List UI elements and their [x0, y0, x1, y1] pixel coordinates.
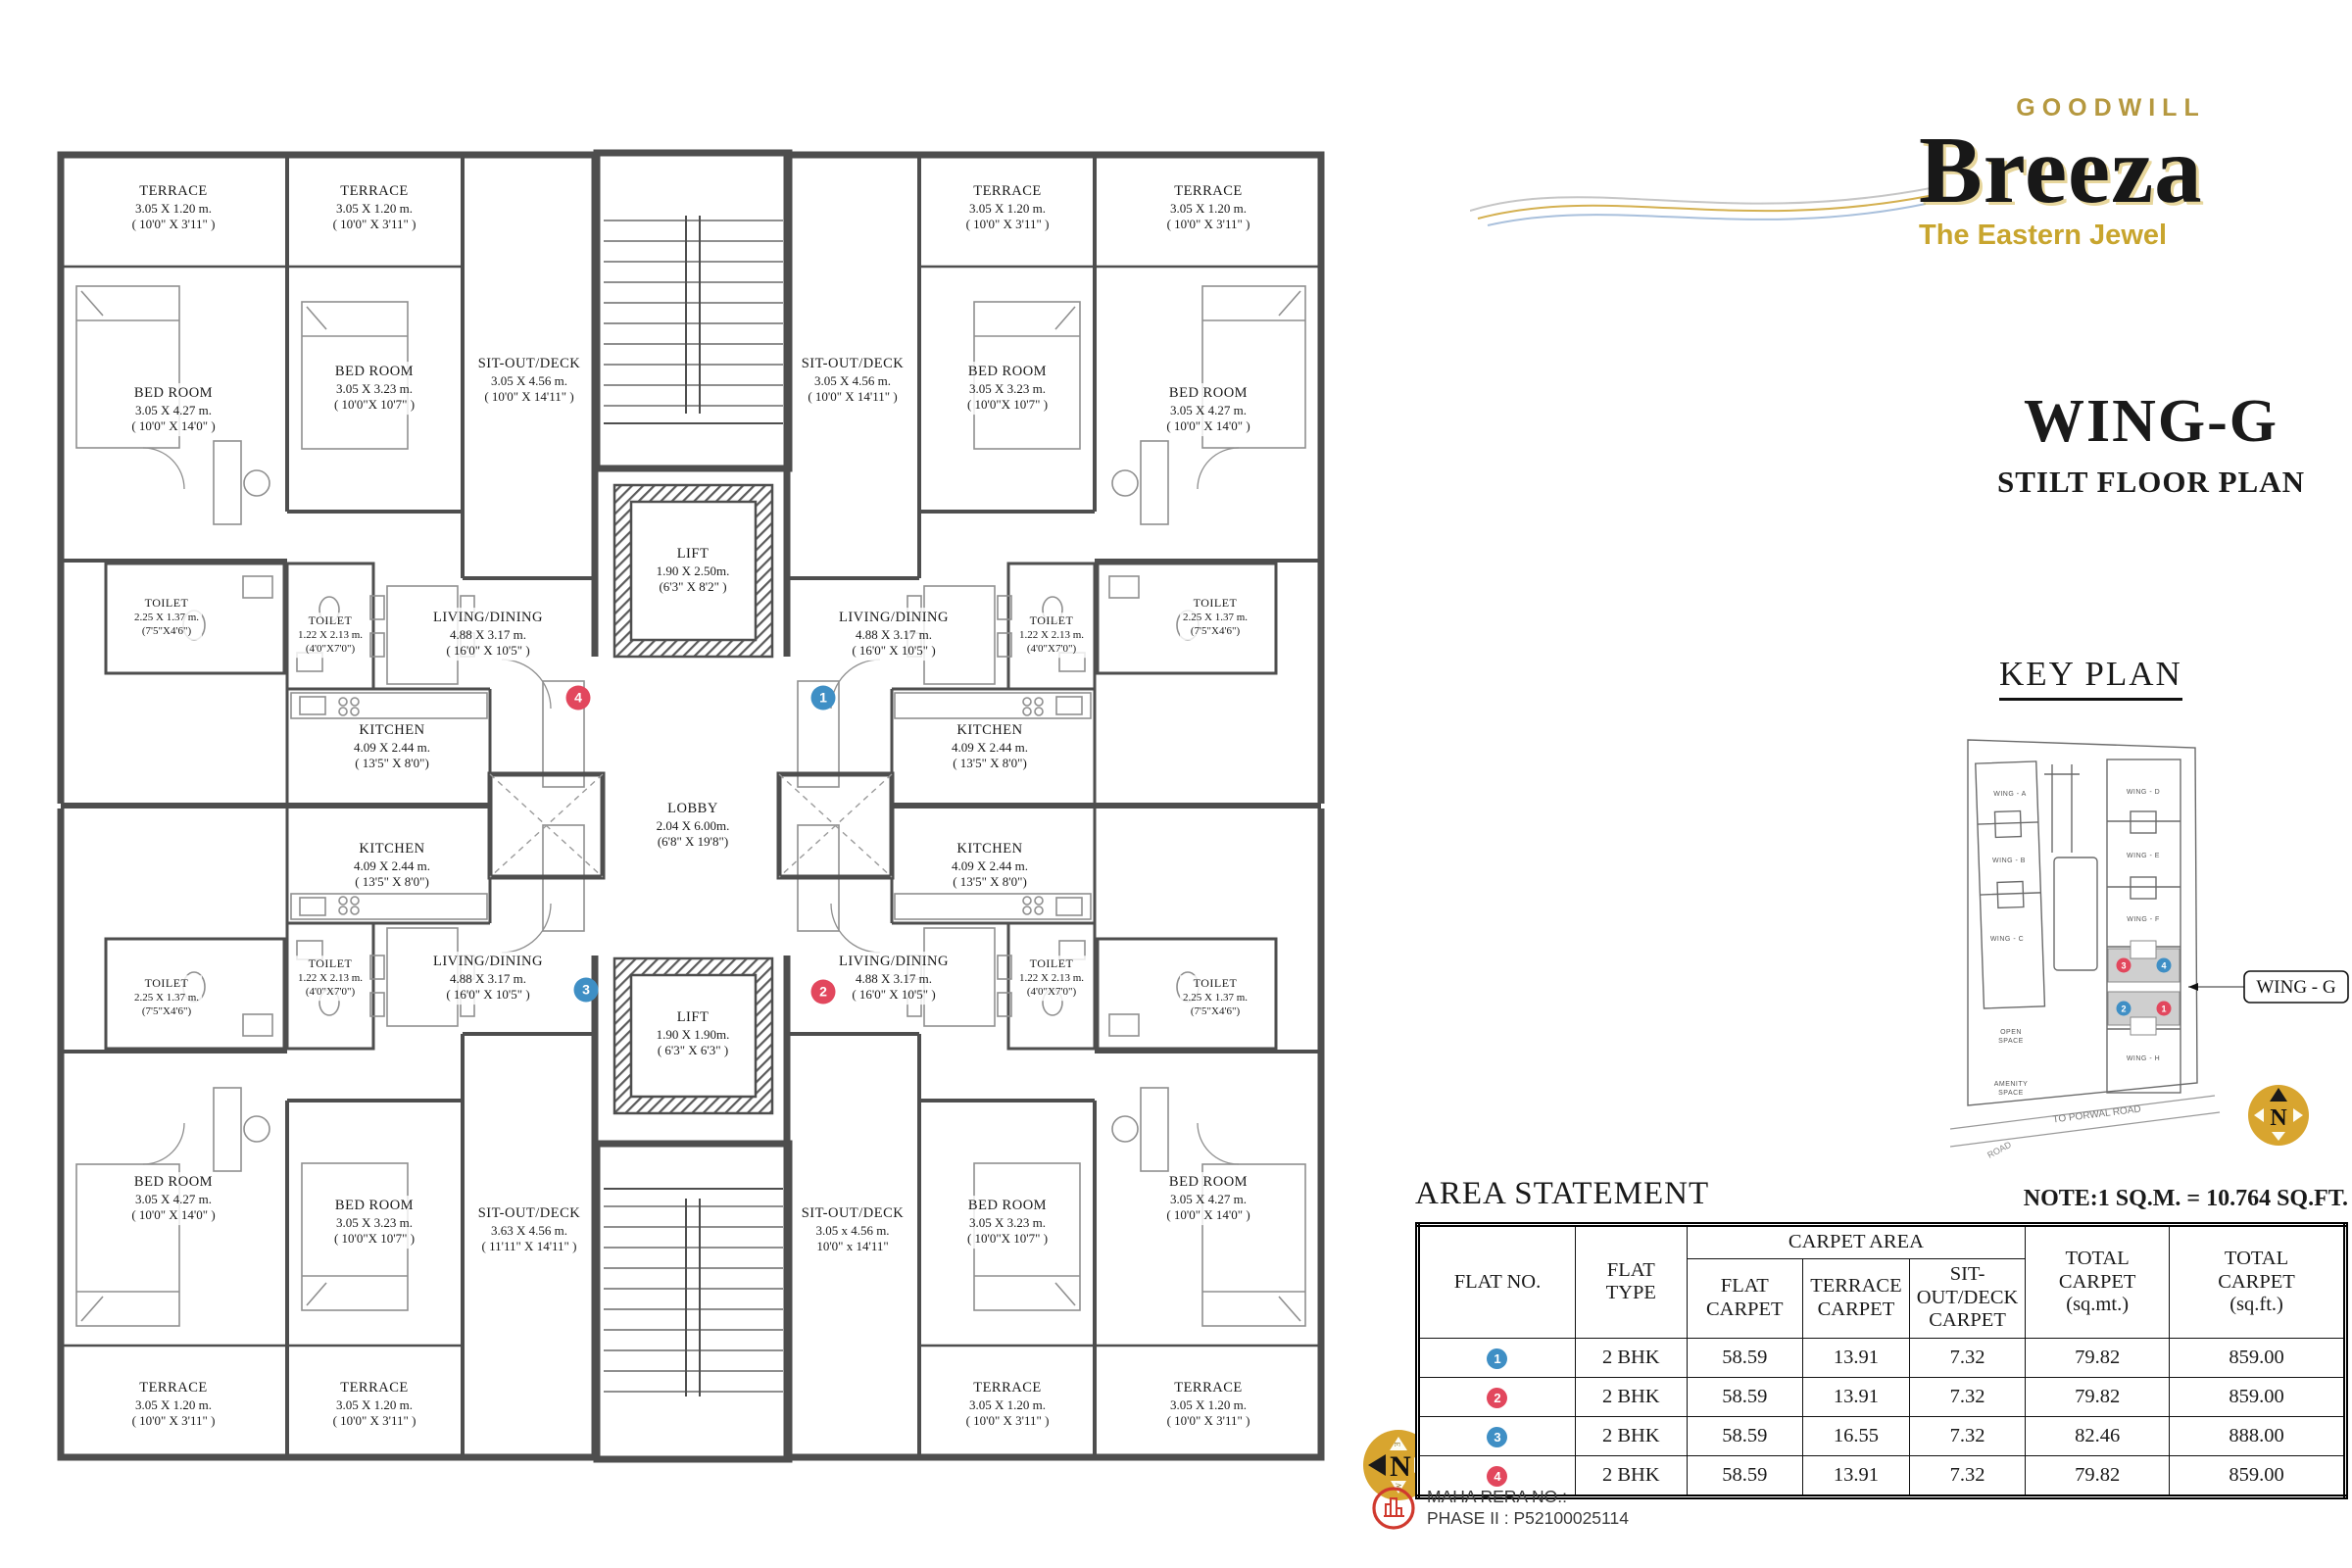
keyplan-dot-1: 1: [2161, 1004, 2166, 1014]
rera-block: MAHA RERA NO.: PHASE II : P52100025114: [1370, 1485, 1629, 1532]
room-label-sitout: SIT-OUT/DECK3.05 x 4.56 m.10'0" x 14'11": [799, 1203, 907, 1256]
keyplan-wing-e: WING - E: [2127, 853, 2160, 859]
room-label-lift-top: LIFT1.90 X 2.50m.(6'3" X 8'2" ): [654, 544, 733, 597]
room-label-lobby: LOBBY2.04 X 6.00m.(6'8" X 19'8"): [654, 799, 733, 852]
flat-no-badge: 4: [1487, 1466, 1507, 1487]
room-label-toilet: TOILET1.22 X 2.13 m.(4'0"X7'0"): [1016, 955, 1087, 1001]
rera-line1: MAHA RERA NO.:: [1427, 1487, 1629, 1508]
key-plan-map: 3 4 2 1 WING - G WING - A WING - B WING …: [1950, 706, 2352, 1176]
room-label-terrace: TERRACE3.05 X 1.20 m.( 10'0" X 3'11" ): [963, 1378, 1053, 1431]
logo-swoosh: [1470, 157, 1931, 245]
keyplan-compass-icon: N: [2248, 1085, 2309, 1146]
flat-marker-1: 1: [811, 686, 836, 710]
keyplan-wing-f: WING - F: [2127, 916, 2160, 923]
page-title: WING-G: [1970, 387, 2332, 457]
table-row: 2 2 BHK58.59 13.917.32 79.82859.00: [1418, 1377, 2346, 1416]
table-row: 3 2 BHK58.59 16.557.32 82.46888.00: [1418, 1416, 2346, 1455]
conversion-note: NOTE:1 SQ.M. = 10.764 SQ.FT.: [2024, 1186, 2348, 1212]
brand-tagline: The Eastern Jewel: [1919, 220, 2303, 252]
room-label-bedroom: BED ROOM3.05 X 4.27 m.( 10'0" X 14'0" ): [128, 1172, 218, 1225]
rera-line2: PHASE II : P52100025114: [1427, 1508, 1629, 1530]
flat-marker-3: 3: [574, 978, 599, 1003]
room-label-sitout: SIT-OUT/DECK3.05 X 4.56 m.( 10'0" X 14'1…: [799, 354, 907, 407]
flat-marker-2: 2: [811, 980, 836, 1004]
col-header-carpet-area: CARPET AREA: [1687, 1225, 2026, 1259]
room-label-toilet: TOILET1.22 X 2.13 m.(4'0"X7'0"): [295, 955, 366, 1001]
room-label-bedroom: BED ROOM3.05 X 3.23 m.( 10'0"X 10'7" ): [964, 1196, 1051, 1249]
room-label-terrace: TERRACE3.05 X 1.20 m.( 10'0" X 3'11" ): [129, 181, 219, 234]
keyplan-wing-d: WING - D: [2127, 789, 2160, 796]
room-label-living: LIVING/DINING4.88 X 3.17 m.( 16'0" X 10'…: [836, 952, 952, 1004]
room-label-kitchen: KITCHEN4.09 X 2.44 m.( 13'5" X 8'0"): [949, 720, 1031, 773]
keyplan-callout: WING - G: [2256, 977, 2336, 998]
room-label-kitchen: KITCHEN4.09 X 2.44 m.( 13'5" X 8'0"): [949, 839, 1031, 892]
room-label-terrace: TERRACE3.05 X 1.20 m.( 10'0" X 3'11" ): [330, 181, 419, 234]
col-header-total-sqft: TOTALCARPET(sq.ft.): [2170, 1225, 2346, 1339]
brand-logo: GOODWILL Breeza The Eastern Jewel: [1919, 94, 2303, 252]
room-label-lift-bottom: LIFT1.90 X 1.90m.( 6'3" X 6'3" ): [654, 1007, 733, 1060]
room-label-terrace: TERRACE3.05 X 1.20 m.( 10'0" X 3'11" ): [1164, 181, 1253, 234]
col-header-sitout-carpet: SIT-OUT/DECKCARPET: [1909, 1258, 2025, 1338]
keyplan-to-road-label: TO PORWAL ROAD: [2052, 1104, 2141, 1126]
svg-text:N: N: [1390, 1450, 1411, 1483]
room-label-terrace: TERRACE3.05 X 1.20 m.( 10'0" X 3'11" ): [1164, 1378, 1253, 1431]
flat-no-badge: 2: [1487, 1388, 1507, 1408]
svg-text:SPACE: SPACE: [1998, 1090, 2024, 1097]
room-label-sitout: SIT-OUT/DECK3.63 X 4.56 m.( 11'11" X 14'…: [475, 1203, 584, 1256]
room-label-bedroom: BED ROOM3.05 X 4.27 m.( 10'0" X 14'0" ): [1163, 383, 1252, 436]
keyplan-wing-h: WING - H: [2127, 1055, 2160, 1062]
keyplan-wing-a: WING - A: [1993, 791, 2027, 798]
keyplan-wing-b: WING - B: [1992, 857, 2026, 864]
area-statement-table: FLAT NO. FLATTYPE CARPET AREA TOTALCARPE…: [1415, 1222, 2348, 1499]
room-label-kitchen: KITCHEN4.09 X 2.44 m.( 13'5" X 8'0"): [351, 720, 433, 773]
keyplan-road-label: ROAD: [1985, 1139, 2013, 1159]
area-statement-title: AREA STATEMENT: [1415, 1176, 1709, 1212]
table-row: 1 2 BHK58.59 13.917.32 79.82859.00: [1418, 1338, 2346, 1377]
room-label-terrace: TERRACE3.05 X 1.20 m.( 10'0" X 3'11" ): [963, 181, 1053, 234]
flat-no-badge: 3: [1487, 1427, 1507, 1447]
room-label-terrace: TERRACE3.05 X 1.20 m.( 10'0" X 3'11" ): [330, 1378, 419, 1431]
key-plan-title: KEY PLAN: [1999, 655, 2182, 701]
brand-name: Breeza: [1919, 122, 2303, 218]
room-label-bedroom: BED ROOM3.05 X 4.27 m.( 10'0" X 14'0" ): [128, 383, 218, 436]
keyplan-dot-2: 2: [2121, 1004, 2126, 1014]
floor-plan: TERRACE3.05 X 1.20 m.( 10'0" X 3'11" ) T…: [49, 147, 1333, 1465]
svg-text:E: E: [1393, 1443, 1401, 1447]
wing-title-block: WING-G STILT FLOOR PLAN: [1970, 387, 2332, 500]
room-label-toilet: TOILET2.25 X 1.37 m.(7'5"X4'6"): [131, 975, 202, 1020]
area-statement-section: AREA STATEMENT NOTE:1 SQ.M. = 10.764 SQ.…: [1415, 1176, 2348, 1499]
room-label-bedroom: BED ROOM3.05 X 3.23 m.( 10'0"X 10'7" ): [331, 1196, 417, 1249]
room-label-bedroom: BED ROOM3.05 X 3.23 m.( 10'0"X 10'7" ): [331, 362, 417, 415]
maha-rera-logo-icon: [1370, 1485, 1417, 1532]
room-label-kitchen: KITCHEN4.09 X 2.44 m.( 13'5" X 8'0"): [351, 839, 433, 892]
keyplan-dot-3: 3: [2121, 961, 2126, 971]
col-header-flat-carpet: FLATCARPET: [1687, 1258, 1802, 1338]
room-label-toilet: TOILET2.25 X 1.37 m.(7'5"X4'6"): [1180, 595, 1250, 640]
room-label-toilet: TOILET1.22 X 2.13 m.(4'0"X7'0"): [1016, 612, 1087, 658]
room-label-toilet: TOILET2.25 X 1.37 m.(7'5"X4'6"): [1180, 975, 1250, 1020]
room-label-terrace: TERRACE3.05 X 1.20 m.( 10'0" X 3'11" ): [129, 1378, 219, 1431]
keyplan-open-space: OPEN: [2000, 1029, 2022, 1036]
flat-no-badge: 1: [1487, 1348, 1507, 1369]
room-label-bedroom: BED ROOM3.05 X 3.23 m.( 10'0"X 10'7" ): [964, 362, 1051, 415]
keyplan-wing-c: WING - C: [1990, 936, 2024, 943]
flat-marker-4: 4: [566, 686, 591, 710]
col-header-flat-type: FLATTYPE: [1575, 1225, 1687, 1339]
keyplan-dot-4: 4: [2161, 961, 2166, 971]
room-label-bedroom: BED ROOM3.05 X 4.27 m.( 10'0" X 14'0" ): [1163, 1172, 1252, 1225]
col-header-flat-no: FLAT NO.: [1418, 1225, 1576, 1339]
room-label-sitout: SIT-OUT/DECK3.05 X 4.56 m.( 10'0" X 14'1…: [475, 354, 584, 407]
room-label-living: LIVING/DINING4.88 X 3.17 m.( 16'0" X 10'…: [836, 608, 952, 661]
col-header-total-sqmt: TOTALCARPET(sq.mt.): [2026, 1225, 2170, 1339]
col-header-terrace-carpet: TERRACECARPET: [1802, 1258, 1909, 1338]
room-label-toilet: TOILET2.25 X 1.37 m.(7'5"X4'6"): [131, 595, 202, 640]
room-label-living: LIVING/DINING4.88 X 3.17 m.( 16'0" X 10'…: [430, 608, 546, 661]
room-label-toilet: TOILET1.22 X 2.13 m.(4'0"X7'0"): [295, 612, 366, 658]
page-subtitle: STILT FLOOR PLAN: [1970, 465, 2332, 500]
room-label-living: LIVING/DINING4.88 X 3.17 m.( 16'0" X 10'…: [430, 952, 546, 1004]
svg-text:N: N: [2270, 1105, 2287, 1131]
keyplan-amenity-space: AMENITY: [1994, 1081, 2029, 1088]
svg-text:SPACE: SPACE: [1998, 1038, 2024, 1045]
